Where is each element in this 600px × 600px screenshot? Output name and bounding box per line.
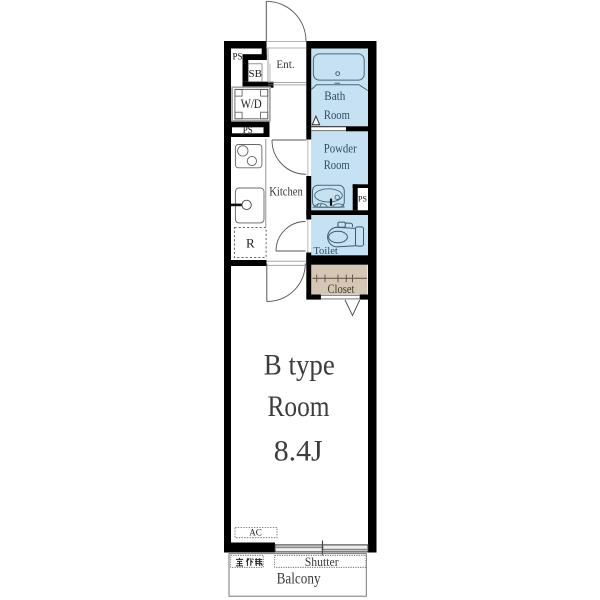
svg-text:Kitchen: Kitchen	[269, 185, 303, 199]
svg-text:PS: PS	[232, 52, 242, 62]
svg-text:B type: B type	[264, 348, 335, 381]
svg-text:SB: SB	[248, 68, 261, 80]
svg-text:PS: PS	[358, 194, 367, 203]
svg-text:AC: AC	[249, 528, 262, 538]
svg-text:Ent.: Ent.	[276, 59, 295, 71]
svg-text:R: R	[246, 236, 255, 251]
svg-text:8.4J: 8.4J	[274, 435, 323, 468]
svg-text:Powder: Powder	[324, 141, 358, 155]
svg-text:Bath: Bath	[324, 89, 346, 103]
svg-text:Room: Room	[324, 108, 350, 122]
svg-text:Room: Room	[324, 158, 350, 172]
svg-text:Closet: Closet	[328, 282, 355, 296]
svg-text:Balcony: Balcony	[277, 571, 321, 588]
svg-text:Toilet: Toilet	[313, 246, 338, 257]
svg-text:Room: Room	[268, 390, 330, 423]
svg-text:Shutter: Shutter	[305, 555, 340, 569]
svg-text:W/D: W/D	[241, 96, 262, 111]
svg-text:PS: PS	[243, 125, 253, 135]
